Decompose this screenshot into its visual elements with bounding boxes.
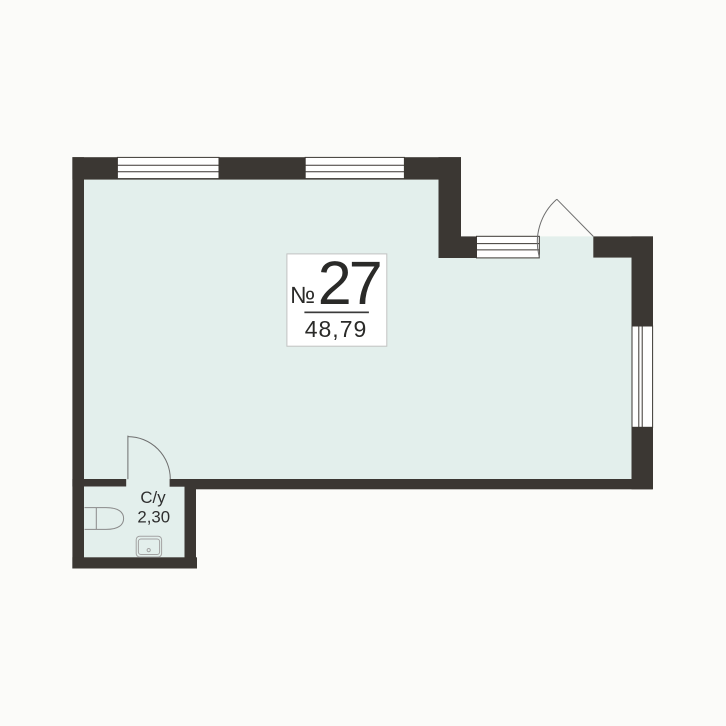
svg-text:27: 27	[318, 249, 380, 317]
svg-text:2,30: 2,30	[137, 507, 170, 526]
svg-text:№: №	[290, 282, 315, 308]
svg-text:48,79: 48,79	[305, 316, 368, 342]
svg-text:С/у: С/у	[140, 488, 166, 507]
